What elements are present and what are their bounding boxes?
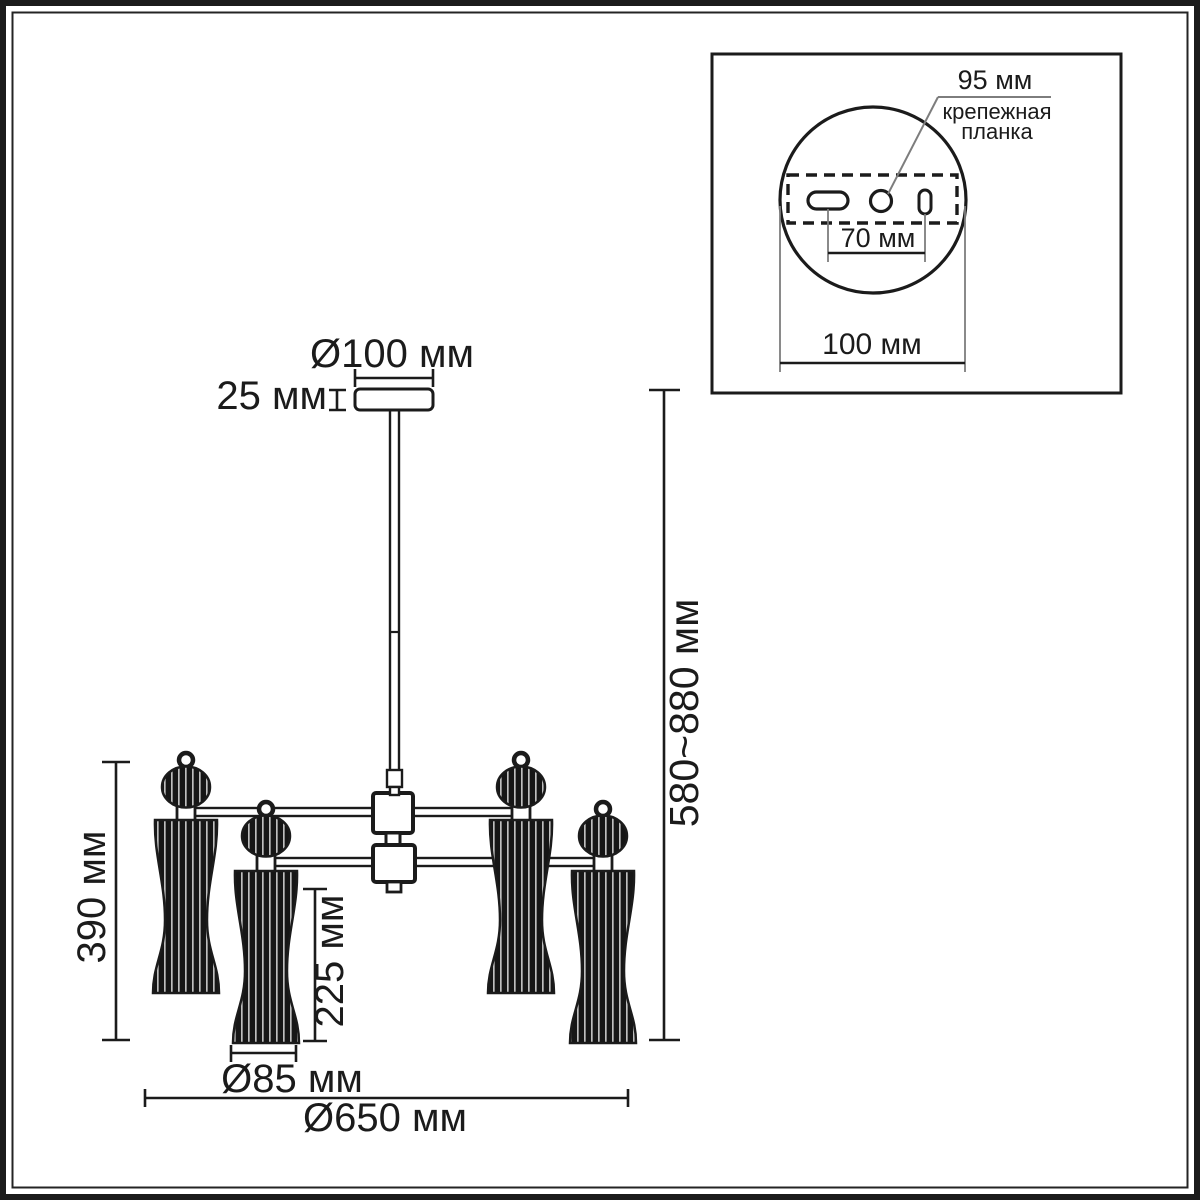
shade-sphere <box>497 767 545 808</box>
dimension-body-height: 390 мм <box>70 762 130 1040</box>
shade-body <box>153 820 219 993</box>
inset-mounting-view: 95 мм крепежная планка 70 мм 100 мм <box>712 54 1121 393</box>
label-hole-spacing: 70 мм <box>841 223 916 253</box>
dimension-canopy-height: 25 мм <box>216 374 346 418</box>
shade-body <box>233 871 299 1043</box>
label-base-diameter: 100 мм <box>822 328 922 361</box>
shade-body <box>570 871 636 1043</box>
hub-bottom-nub <box>387 882 401 892</box>
hub-upper-block <box>373 793 413 833</box>
arm-upper-right <box>412 808 521 816</box>
rod-lower-stub <box>390 787 399 795</box>
drawing-canvas: 95 мм крепежная планка 70 мм 100 мм <box>0 0 1200 1200</box>
label-body-height: 390 мм <box>70 831 114 964</box>
label-plate-length: 95 мм <box>958 65 1033 95</box>
label-canopy-height: 25 мм <box>216 374 327 418</box>
shade-finial-ring <box>179 753 193 767</box>
dimension-canopy-diameter: Ø100 мм <box>310 332 474 387</box>
label-height-range: 580~880 мм <box>661 599 707 828</box>
shade-rear-left <box>153 753 219 993</box>
label-canopy-diameter: Ø100 мм <box>310 332 474 376</box>
label-overall-diameter: Ø650 мм <box>303 1096 467 1140</box>
rod-collar <box>387 770 402 787</box>
shade-sphere <box>162 767 210 808</box>
shade-front-left <box>233 802 299 1043</box>
dimension-shade-diameter: Ø85 мм <box>221 1045 363 1101</box>
ceiling-canopy <box>355 389 433 410</box>
shade-finial-ring <box>259 802 273 816</box>
dimension-shade-height: 225 мм <box>303 889 352 1041</box>
dimension-overall-diameter: Ø650 мм <box>145 1089 628 1140</box>
hub-lower-block <box>373 845 415 882</box>
dimension-height-range: 580~880 мм <box>649 390 707 1040</box>
rod-upper-section <box>390 409 399 771</box>
mounting-slot-right <box>919 190 931 214</box>
arm-lower-left <box>266 858 376 866</box>
label-shade-diameter: Ø85 мм <box>221 1057 363 1101</box>
shade-finial-ring <box>596 802 610 816</box>
central-hub <box>373 793 415 892</box>
arm-upper-left <box>186 808 376 816</box>
chandelier-figure: Ø100 мм 25 мм 580~880 мм 390 мм <box>70 332 707 1140</box>
label-plate-name-line2: планка <box>961 119 1033 144</box>
chandelier-dimension-drawing: 95 мм крепежная планка 70 мм 100 мм <box>0 0 1200 1200</box>
mounting-slot-left <box>808 192 848 209</box>
shade-front-right <box>570 802 636 1043</box>
shade-body <box>488 820 554 993</box>
shade-sphere <box>579 816 627 857</box>
suspension <box>355 389 433 795</box>
shade-rear-right <box>488 753 554 993</box>
shade-finial-ring <box>514 753 528 767</box>
label-shade-height: 225 мм <box>308 895 352 1028</box>
shade-sphere <box>242 816 290 857</box>
